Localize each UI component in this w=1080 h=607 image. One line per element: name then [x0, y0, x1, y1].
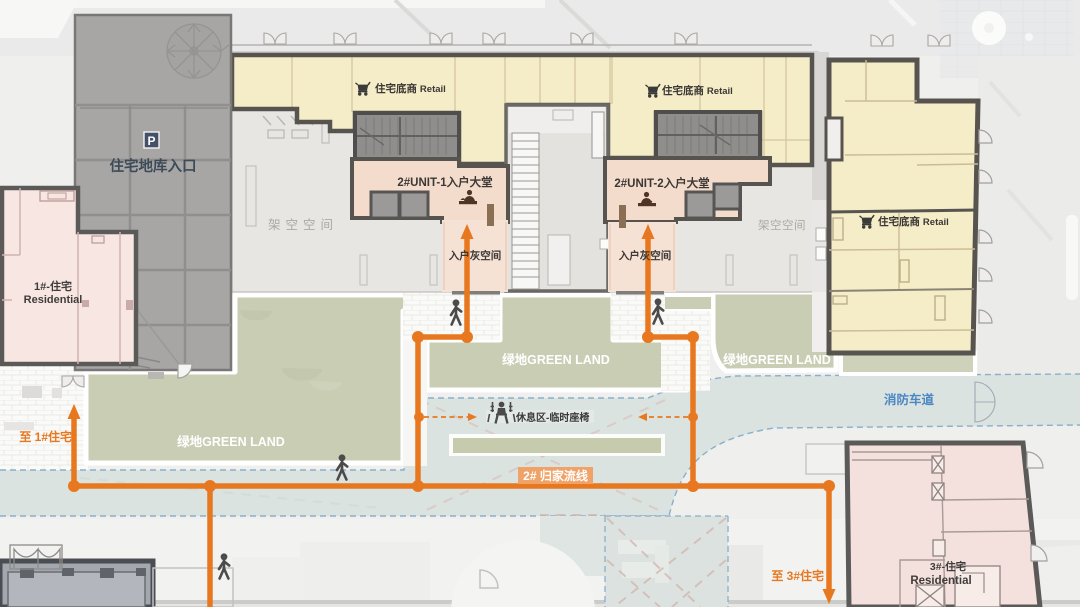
svg-text:Residential: Residential — [24, 294, 83, 306]
svg-text:至 1#住宅: 至 1#住宅 — [19, 429, 72, 444]
svg-text:3#-住宅: 3#-住宅 — [930, 560, 967, 573]
svg-text:1#-住宅: 1#-住宅 — [34, 279, 72, 293]
svg-text:住宅地库入口: 住宅地库入口 — [110, 157, 197, 175]
svg-text:Residential: Residential — [910, 575, 971, 587]
svg-text:住宅底商 Retail: 住宅底商 Retail — [878, 215, 949, 228]
svg-text:入户灰空间: 入户灰空间 — [619, 249, 672, 262]
svg-text:至 3#住宅: 至 3#住宅 — [771, 568, 824, 583]
svg-text:架空空间: 架空空间 — [758, 218, 806, 232]
svg-text:2#UNIT-1入户大堂: 2#UNIT-1入户大堂 — [397, 175, 492, 189]
svg-text:住宅底商 Retail: 住宅底商 Retail — [375, 82, 446, 95]
svg-text:绿地GREEN LAND: 绿地GREEN LAND — [502, 352, 610, 367]
svg-text:2# 归家流线: 2# 归家流线 — [523, 468, 588, 483]
svg-text:架空空间: 架空空间 — [268, 218, 338, 232]
svg-text:2#UNIT-2入户大堂: 2#UNIT-2入户大堂 — [614, 176, 709, 190]
svg-text:休息区-临时座椅: 休息区-临时座椅 — [515, 411, 589, 424]
svg-text:住宅底商 Retail: 住宅底商 Retail — [662, 84, 733, 97]
svg-text:绿地GREEN LAND: 绿地GREEN LAND — [723, 352, 831, 367]
svg-text:绿地GREEN LAND: 绿地GREEN LAND — [177, 434, 285, 449]
svg-text:消防车道: 消防车道 — [884, 392, 935, 407]
svg-text:入户灰空间: 入户灰空间 — [449, 249, 502, 262]
svg-text:P: P — [147, 134, 155, 148]
